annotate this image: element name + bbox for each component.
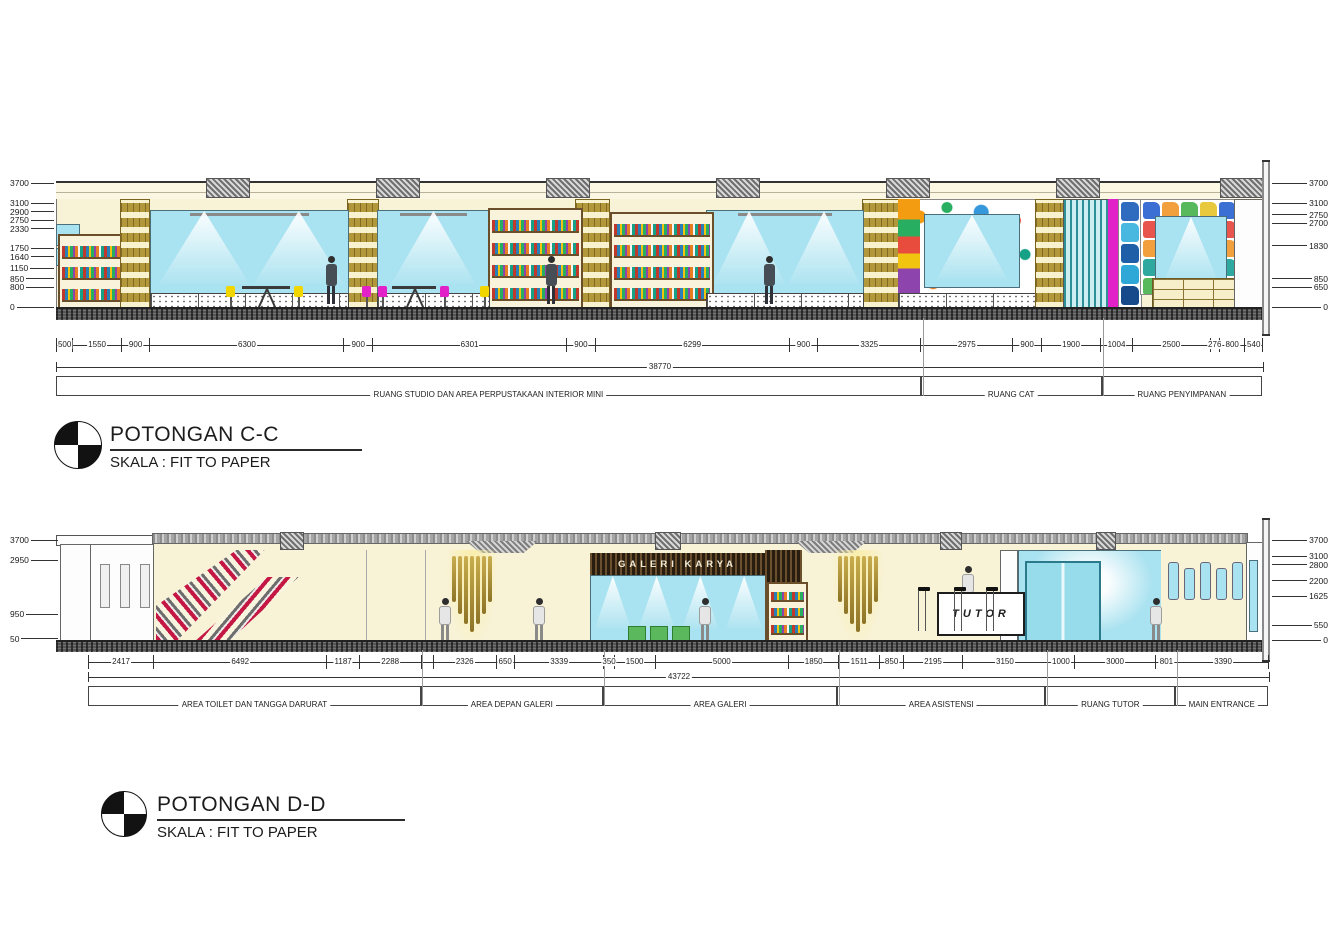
gold-pier: [862, 199, 900, 309]
dimension-segment: 2288: [359, 655, 421, 669]
section-title: POTONGAN D-D: [157, 793, 405, 817]
ceiling-block: [1220, 178, 1264, 198]
dimension-value: 3339: [549, 657, 569, 666]
room-cell: AREA ASISTENSI: [837, 686, 1045, 706]
person-legs: [544, 286, 558, 304]
dimension-value: 6301: [460, 340, 480, 349]
room-label: MAIN ENTRANCE: [1186, 700, 1258, 709]
level-label: 650: [1272, 282, 1328, 292]
title-underline: [110, 449, 362, 451]
dimension-segment: 900: [566, 338, 595, 352]
room-boundary-line: [1103, 318, 1104, 396]
person-figure: [324, 256, 338, 304]
chair: [362, 286, 372, 307]
section-marker-icon: [54, 421, 102, 469]
floor-band: [56, 307, 1262, 320]
dimension-value: 1550: [87, 340, 107, 349]
book-row: [771, 625, 804, 635]
gallery-sign-text: GALERI KARYA: [590, 553, 765, 575]
ceiling-block: [655, 532, 681, 550]
level-label: 2800: [1272, 560, 1328, 570]
paint-strip: [898, 199, 920, 293]
room-label: RUANG PENYIMPANAN: [1134, 390, 1229, 399]
light-cone: [159, 211, 250, 284]
dimension-value: 1000: [1051, 657, 1071, 666]
wall-slot: [120, 564, 130, 608]
dimension-segment: 6300: [149, 338, 343, 352]
person-figure: [544, 256, 558, 304]
entrance-window-slot: [1232, 562, 1243, 600]
stool: [918, 587, 930, 631]
section-title: POTONGAN C-C: [110, 423, 362, 447]
icon-tile: [1121, 265, 1139, 284]
dimension-segment: 800: [1219, 338, 1245, 352]
dimension-value: 900: [1019, 340, 1034, 349]
ceiling-block: [206, 178, 250, 198]
book-row: [614, 288, 710, 301]
light-cone: [936, 215, 1007, 280]
dimension-segment: 6301: [372, 338, 566, 352]
light-cone: [788, 211, 860, 284]
dimension-value: 1187: [334, 657, 353, 666]
dimension-segment: 801: [1155, 655, 1177, 669]
library-bookshelf: [488, 208, 583, 313]
room-cell: RUANG PENYIMPANAN: [1102, 376, 1262, 396]
chair: [480, 286, 490, 307]
ceiling-block: [376, 178, 420, 198]
pendant-light: [190, 213, 308, 216]
dimension-value: 2417: [111, 657, 131, 666]
level-label: 3700: [1272, 535, 1328, 545]
entrance-window-slot: [1184, 568, 1195, 600]
book-row: [492, 220, 579, 233]
level-label: 3100: [1272, 198, 1328, 208]
dimension-value: 2288: [380, 657, 400, 666]
scale-label: SKALA : FIT TO PAPER: [110, 454, 362, 471]
dimension-value: 3390: [1213, 657, 1233, 666]
dimension-segment: 900: [789, 338, 818, 352]
end-panel: [1234, 199, 1264, 309]
dimension-value: 540: [1246, 340, 1261, 349]
level-label: 0: [1272, 635, 1328, 645]
book-row: [614, 267, 710, 280]
dimension-value: 276: [1207, 340, 1222, 349]
ceiling-block: [886, 178, 930, 198]
dimension-segment: 3390: [1177, 655, 1268, 669]
icon-tile-column: [1118, 199, 1142, 309]
level-label: 50: [10, 634, 58, 644]
person-figure: [698, 598, 712, 640]
level-label: 2200: [1272, 576, 1328, 586]
book-row: [492, 243, 579, 256]
dimension-value: 3000: [1105, 657, 1125, 666]
light-cone: [1164, 217, 1217, 280]
dimension-value: 900: [573, 340, 588, 349]
room-boundary-line: [1177, 650, 1178, 706]
dimension-value: 2195: [923, 657, 943, 666]
dimension-segment: 2975: [920, 338, 1012, 352]
person-figure: [438, 598, 452, 640]
room-label: AREA DEPAN GALERI: [468, 700, 556, 709]
section-cut-pole: [1262, 518, 1270, 662]
chair: [226, 286, 236, 307]
end-window: [1249, 560, 1258, 632]
room-label: AREA GALERI: [691, 700, 750, 709]
level-label: 0: [10, 302, 54, 312]
level-label: 3700: [10, 178, 54, 188]
exterior-wall: [60, 544, 92, 642]
dimension-segment: 1900: [1041, 338, 1100, 352]
dimension-value: 2500: [1161, 340, 1181, 349]
dimension-segment: 900: [1012, 338, 1041, 352]
level-label: 3700: [10, 535, 58, 545]
room-label: AREA ASISTENSI: [906, 700, 977, 709]
wall-slot: [140, 564, 150, 608]
person-torso: [764, 264, 775, 286]
total-value: 38770: [647, 362, 673, 371]
room-band-d: AREA TOILET DAN TANGGA DARURAT AREA DEPA…: [88, 686, 1268, 706]
person-torso: [326, 264, 337, 286]
room-label: RUANG TUTOR: [1078, 700, 1142, 709]
room-boundary-line: [422, 650, 423, 706]
dimension-segment: 500: [56, 338, 72, 352]
section-cut-pole: [1262, 160, 1270, 336]
dimension-segment: 1187: [326, 655, 359, 669]
ceiling-band: [152, 533, 1248, 544]
level-label: 1625: [1272, 591, 1328, 601]
dimension-segment: 1850: [788, 655, 838, 669]
dimension-value: 900: [128, 340, 143, 349]
dimension-segment: 650: [496, 655, 514, 669]
chair: [378, 286, 388, 307]
ceiling-block: [1056, 178, 1100, 198]
library-bookshelf: [610, 212, 714, 313]
title-underline: [157, 819, 405, 821]
book-row: [62, 267, 122, 280]
dimension-segment: 3150: [962, 655, 1047, 669]
stool: [954, 587, 966, 631]
mural-window: [924, 214, 1020, 288]
dimension-value: 1004: [1107, 340, 1127, 349]
brick-cabinet: [1152, 278, 1236, 309]
book-row: [614, 224, 710, 237]
title-block-d: POTONGAN D-D SKALA : FIT TO PAPER: [157, 793, 405, 841]
glazing: [150, 210, 349, 295]
dimension-value: 900: [796, 340, 811, 349]
gold-louver-feature: [452, 556, 492, 640]
dimension-segment: 1550: [72, 338, 121, 352]
dimension-segment: 3339: [514, 655, 604, 669]
level-label: 2950: [10, 555, 58, 565]
light-cone: [595, 576, 632, 629]
icon-tile: [1121, 223, 1139, 242]
dimension-segment: 1004: [1100, 338, 1132, 352]
level-label: 800: [10, 282, 54, 292]
room-cell: RUANG STUDIO DAN AREA PERPUSTAKAAN INTER…: [56, 376, 921, 396]
room-boundary-line: [923, 318, 924, 396]
level-label: 1640: [10, 252, 54, 262]
wall-slot: [100, 564, 110, 608]
level-label: 1830: [1272, 241, 1328, 251]
gallery-sign-band: GALERI KARYA: [590, 553, 765, 575]
book-row: [492, 265, 579, 278]
dimension-value: 500: [57, 340, 72, 349]
wall-bookshelf: [58, 234, 126, 313]
dimension-value: 3150: [995, 657, 1015, 666]
dimension-segment: 900: [343, 338, 372, 352]
table: [242, 286, 290, 309]
book-row: [771, 608, 804, 618]
stool: [986, 587, 998, 631]
tutor-glass-wall: [1018, 550, 1163, 642]
room-cell: AREA DEPAN GALERI: [421, 686, 603, 706]
book-row: [62, 289, 122, 302]
dimension-segment: 276: [1210, 338, 1219, 352]
person-legs: [762, 286, 776, 304]
floor-band: [56, 640, 1270, 652]
room-label: AREA TOILET DAN TANGGA DARURAT: [179, 700, 330, 709]
book-row: [492, 288, 579, 301]
dimension-value: 801: [1159, 657, 1174, 666]
room-band-c: RUANG STUDIO DAN AREA PERPUSTAKAAN INTER…: [56, 376, 1262, 396]
level-label: 0: [1272, 302, 1328, 312]
icon-tile: [1121, 202, 1139, 221]
table: [392, 286, 436, 309]
section-c-elevation: [56, 178, 1262, 318]
dimension-value: 1900: [1061, 340, 1081, 349]
dimension-segment: 6299: [595, 338, 789, 352]
title-block-c: POTONGAN C-C SKALA : FIT TO PAPER: [110, 423, 362, 471]
entrance-window-slot: [1200, 562, 1211, 600]
dimension-value: 1500: [625, 657, 645, 666]
dimension-segment: 1500: [614, 655, 655, 669]
ceiling-block: [280, 532, 304, 550]
room-cell: MAIN ENTRANCE: [1175, 686, 1268, 706]
gold-pier: [120, 199, 150, 309]
room-cell: RUANG CAT: [921, 376, 1102, 396]
person-head: [548, 256, 555, 263]
room-boundary-line: [1047, 650, 1048, 706]
dimension-segment: 1000: [1047, 655, 1075, 669]
wall-seam: [366, 550, 367, 640]
dimension-value: 6299: [682, 340, 702, 349]
icon-tile: [1121, 244, 1139, 263]
room-cell: AREA TOILET DAN TANGGA DARURAT: [88, 686, 421, 706]
person-legs: [324, 286, 338, 304]
person-figure: [532, 598, 546, 640]
section-d-elevation: GALERI KARYA: [56, 530, 1270, 652]
dimension-segment: 3000: [1074, 655, 1155, 669]
total-dimension-c: 38770: [56, 362, 1264, 372]
dimension-segment: 850: [879, 655, 903, 669]
level-label: 1150: [10, 263, 54, 273]
room-label: RUANG STUDIO DAN AREA PERPUSTAKAAN INTER…: [371, 390, 607, 399]
wall-seam: [425, 550, 426, 640]
pillar-bookshelf: [767, 582, 808, 644]
dimension-value: 6492: [230, 657, 250, 666]
dimension-value: 800: [1225, 340, 1240, 349]
dimension-value: 3325: [859, 340, 879, 349]
ceiling-block: [716, 178, 760, 198]
person-figure: [762, 256, 776, 304]
level-label: 2700: [1272, 218, 1328, 228]
scale-label: SKALA : FIT TO PAPER: [157, 824, 405, 841]
glazing: [377, 210, 490, 295]
room-label: RUANG CAT: [985, 390, 1038, 399]
total-value: 43722: [666, 672, 692, 681]
ceiling-block: [1096, 532, 1116, 550]
dimension-value: 900: [351, 340, 366, 349]
dimension-value: 650: [498, 657, 513, 666]
room-boundary-line: [839, 650, 840, 706]
total-dimension-d: 43722: [88, 672, 1270, 682]
dimension-segment: 6492: [153, 655, 326, 669]
dimension-value: 350: [601, 657, 616, 666]
level-label: 550: [1272, 620, 1328, 630]
gold-panel: [1035, 199, 1065, 309]
dimension-segment: 540: [1244, 338, 1262, 352]
dimension-value: 2975: [957, 340, 977, 349]
light-cone: [638, 576, 675, 629]
book-row: [62, 246, 122, 259]
entrance-window-slot: [1216, 568, 1227, 600]
room-cell: AREA GALERI: [603, 686, 837, 706]
section-marker-icon: [101, 791, 147, 837]
level-label: 2330: [10, 224, 54, 234]
person-torso: [546, 264, 557, 286]
icon-tile: [1121, 286, 1139, 305]
ceiling-block: [940, 532, 962, 550]
dimension-segment: 2417: [88, 655, 153, 669]
light-cone: [726, 576, 763, 629]
person-head: [766, 256, 773, 263]
book-row: [614, 245, 710, 258]
dimension-row-d: 2417 6492 1187 2288 2326 650 3339 350 15…: [88, 655, 1269, 669]
dimension-value: 850: [884, 657, 899, 666]
glass-door: [1025, 561, 1101, 642]
entrance-window-slot: [1168, 562, 1179, 600]
room-cell: RUANG TUTOR: [1045, 686, 1175, 706]
dimension-value: 1850: [804, 657, 824, 666]
chair: [294, 286, 304, 307]
dimension-row-c: 500 1550 900 6300 900 6301 900 6299 900 …: [56, 338, 1263, 352]
dimension-value: 1511: [850, 657, 869, 666]
book-row: [771, 592, 804, 602]
dimension-segment: 3325: [817, 338, 920, 352]
dimension-segment: 900: [121, 338, 150, 352]
gold-louver-feature: [838, 556, 878, 640]
dimension-segment: 2500: [1132, 338, 1210, 352]
person-head: [328, 256, 335, 263]
dimension-value: 2326: [455, 657, 475, 666]
person-figure: [1149, 598, 1163, 640]
drawing-canvas: 500 1550 900 6300 900 6301 900 6299 900 …: [0, 0, 1342, 949]
dimension-value: 6300: [237, 340, 257, 349]
ceiling-block: [546, 178, 590, 198]
dimension-value: 5000: [712, 657, 732, 666]
chair: [440, 286, 450, 307]
wood-slat-wall: [1063, 199, 1110, 309]
dimension-segment: 2195: [903, 655, 962, 669]
tutor-desk: TUTOR: [937, 592, 1025, 636]
light-cone: [391, 211, 475, 284]
dimension-segment: 5000: [655, 655, 789, 669]
pendant-light: [738, 213, 832, 216]
accent-strip: [1108, 199, 1118, 307]
level-label: 950: [10, 609, 58, 619]
dimension-segment: 1511: [838, 655, 879, 669]
level-label: 3700: [1272, 178, 1328, 188]
glazing: [706, 210, 864, 295]
dimension-segment: 2326: [433, 655, 496, 669]
